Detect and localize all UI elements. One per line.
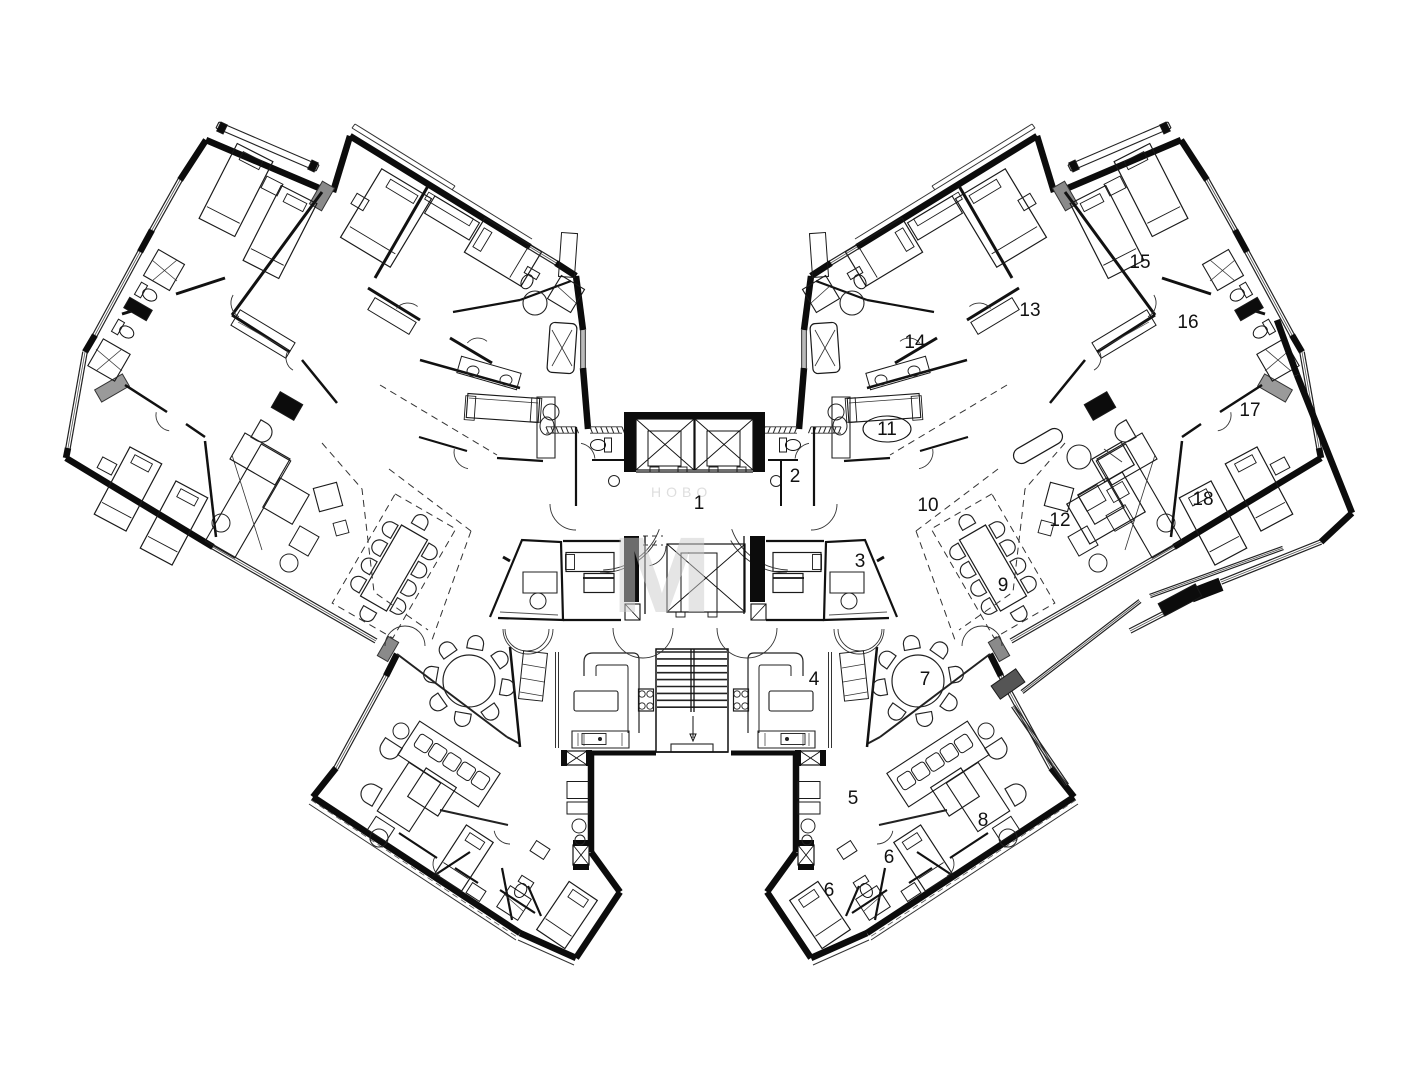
svg-text:11: 11 bbox=[877, 419, 897, 440]
svg-text:12: 12 bbox=[1049, 510, 1070, 531]
svg-text:4: 4 bbox=[809, 669, 820, 690]
svg-text:8: 8 bbox=[978, 810, 989, 831]
svg-text:6: 6 bbox=[884, 847, 895, 868]
svg-text:2: 2 bbox=[790, 466, 801, 487]
svg-text:15: 15 bbox=[1129, 252, 1150, 273]
svg-text:16: 16 bbox=[1177, 312, 1198, 333]
svg-text:13: 13 bbox=[1019, 300, 1040, 321]
svg-text:9: 9 bbox=[998, 575, 1009, 596]
svg-text:5: 5 bbox=[848, 788, 859, 809]
svg-text:1: 1 bbox=[694, 493, 705, 514]
svg-text:M: M bbox=[612, 515, 713, 636]
svg-text:17: 17 bbox=[1239, 400, 1260, 421]
svg-text:18: 18 bbox=[1192, 489, 1213, 510]
svg-text:6: 6 bbox=[824, 880, 835, 901]
svg-text:10: 10 bbox=[917, 495, 938, 516]
svg-text:3: 3 bbox=[855, 551, 866, 572]
svg-text:14: 14 bbox=[904, 332, 926, 353]
svg-text:7: 7 bbox=[920, 669, 931, 690]
